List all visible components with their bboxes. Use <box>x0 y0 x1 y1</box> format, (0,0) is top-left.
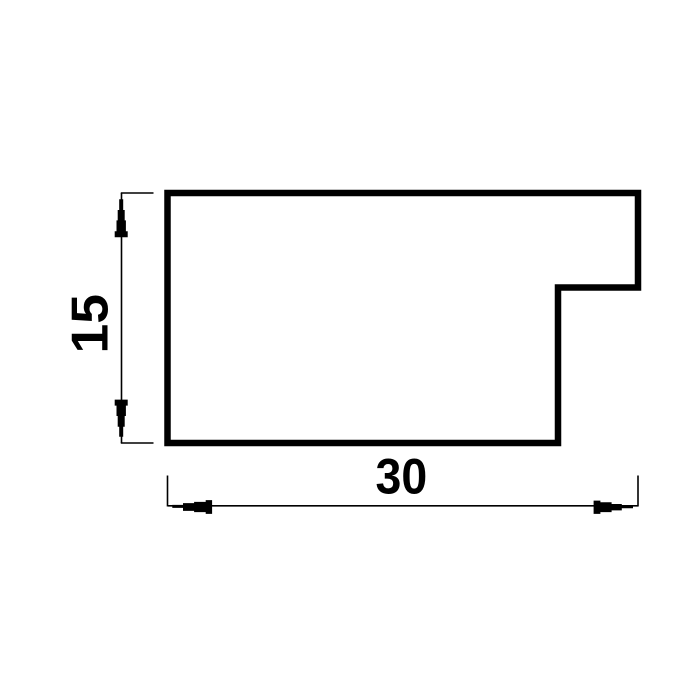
svg-text:30: 30 <box>376 449 428 505</box>
svg-text:15: 15 <box>62 294 120 353</box>
